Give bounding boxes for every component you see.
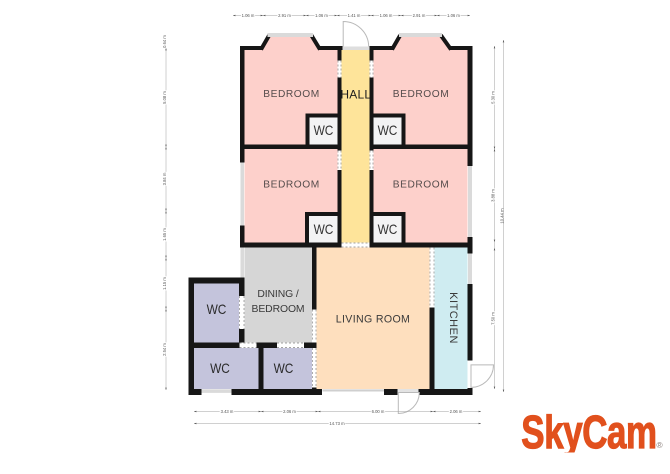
svg-text:WC: WC — [274, 360, 294, 376]
svg-text:HALL: HALL — [340, 87, 371, 101]
svg-text:DINING /: DINING / — [257, 289, 299, 300]
svg-text:1.15 m: 1.15 m — [162, 277, 167, 290]
svg-text:1.41 m: 1.41 m — [348, 13, 361, 18]
svg-text:3.84 m: 3.84 m — [162, 172, 167, 185]
svg-text:WC: WC — [314, 122, 334, 138]
svg-text:BEDROOM: BEDROOM — [252, 304, 305, 315]
svg-text:2.06 m: 2.06 m — [283, 409, 296, 414]
svg-text:3.43 m: 3.43 m — [221, 409, 234, 414]
svg-text:2.06 m: 2.06 m — [450, 409, 463, 414]
svg-text:BEDROOM: BEDROOM — [393, 179, 450, 190]
svg-text:BEDROOM: BEDROOM — [393, 89, 450, 100]
svg-text:KITCHEN: KITCHEN — [447, 292, 459, 344]
svg-text:WC: WC — [207, 301, 227, 317]
svg-text:1.06 m: 1.06 m — [315, 13, 328, 18]
svg-text:1.06 m: 1.06 m — [447, 13, 460, 18]
svg-text:1.65 m: 1.65 m — [162, 228, 167, 241]
svg-text:BEDROOM: BEDROOM — [263, 179, 320, 190]
svg-text:1.06 m: 1.06 m — [242, 13, 255, 18]
svg-text:WC: WC — [378, 221, 398, 237]
svg-text:7.50 m: 7.50 m — [491, 312, 496, 325]
svg-text:6.00 m: 6.00 m — [372, 409, 385, 414]
svg-text:0.64 m: 0.64 m — [162, 35, 167, 48]
svg-text:®: ® — [656, 440, 663, 450]
svg-text:WC: WC — [314, 221, 334, 237]
svg-text:SkyCam: SkyCam — [521, 406, 656, 458]
svg-text:2.91 m: 2.91 m — [413, 13, 426, 18]
svg-text:2.54 m: 2.54 m — [162, 343, 167, 356]
svg-text:3.88 m: 3.88 m — [491, 189, 496, 202]
svg-text:WC: WC — [210, 360, 230, 376]
svg-text:5.08 m: 5.08 m — [162, 91, 167, 104]
svg-text:BEDROOM: BEDROOM — [263, 89, 320, 100]
svg-text:5.30 m: 5.30 m — [491, 91, 496, 104]
svg-text:WC: WC — [378, 122, 398, 138]
svg-text:LIVING ROOM: LIVING ROOM — [336, 313, 410, 325]
svg-text:14.73 m: 14.73 m — [329, 421, 345, 426]
svg-text:10.44 m: 10.44 m — [500, 208, 505, 224]
svg-text:1.06 m: 1.06 m — [380, 13, 393, 18]
svg-text:2.91 m: 2.91 m — [278, 13, 291, 18]
